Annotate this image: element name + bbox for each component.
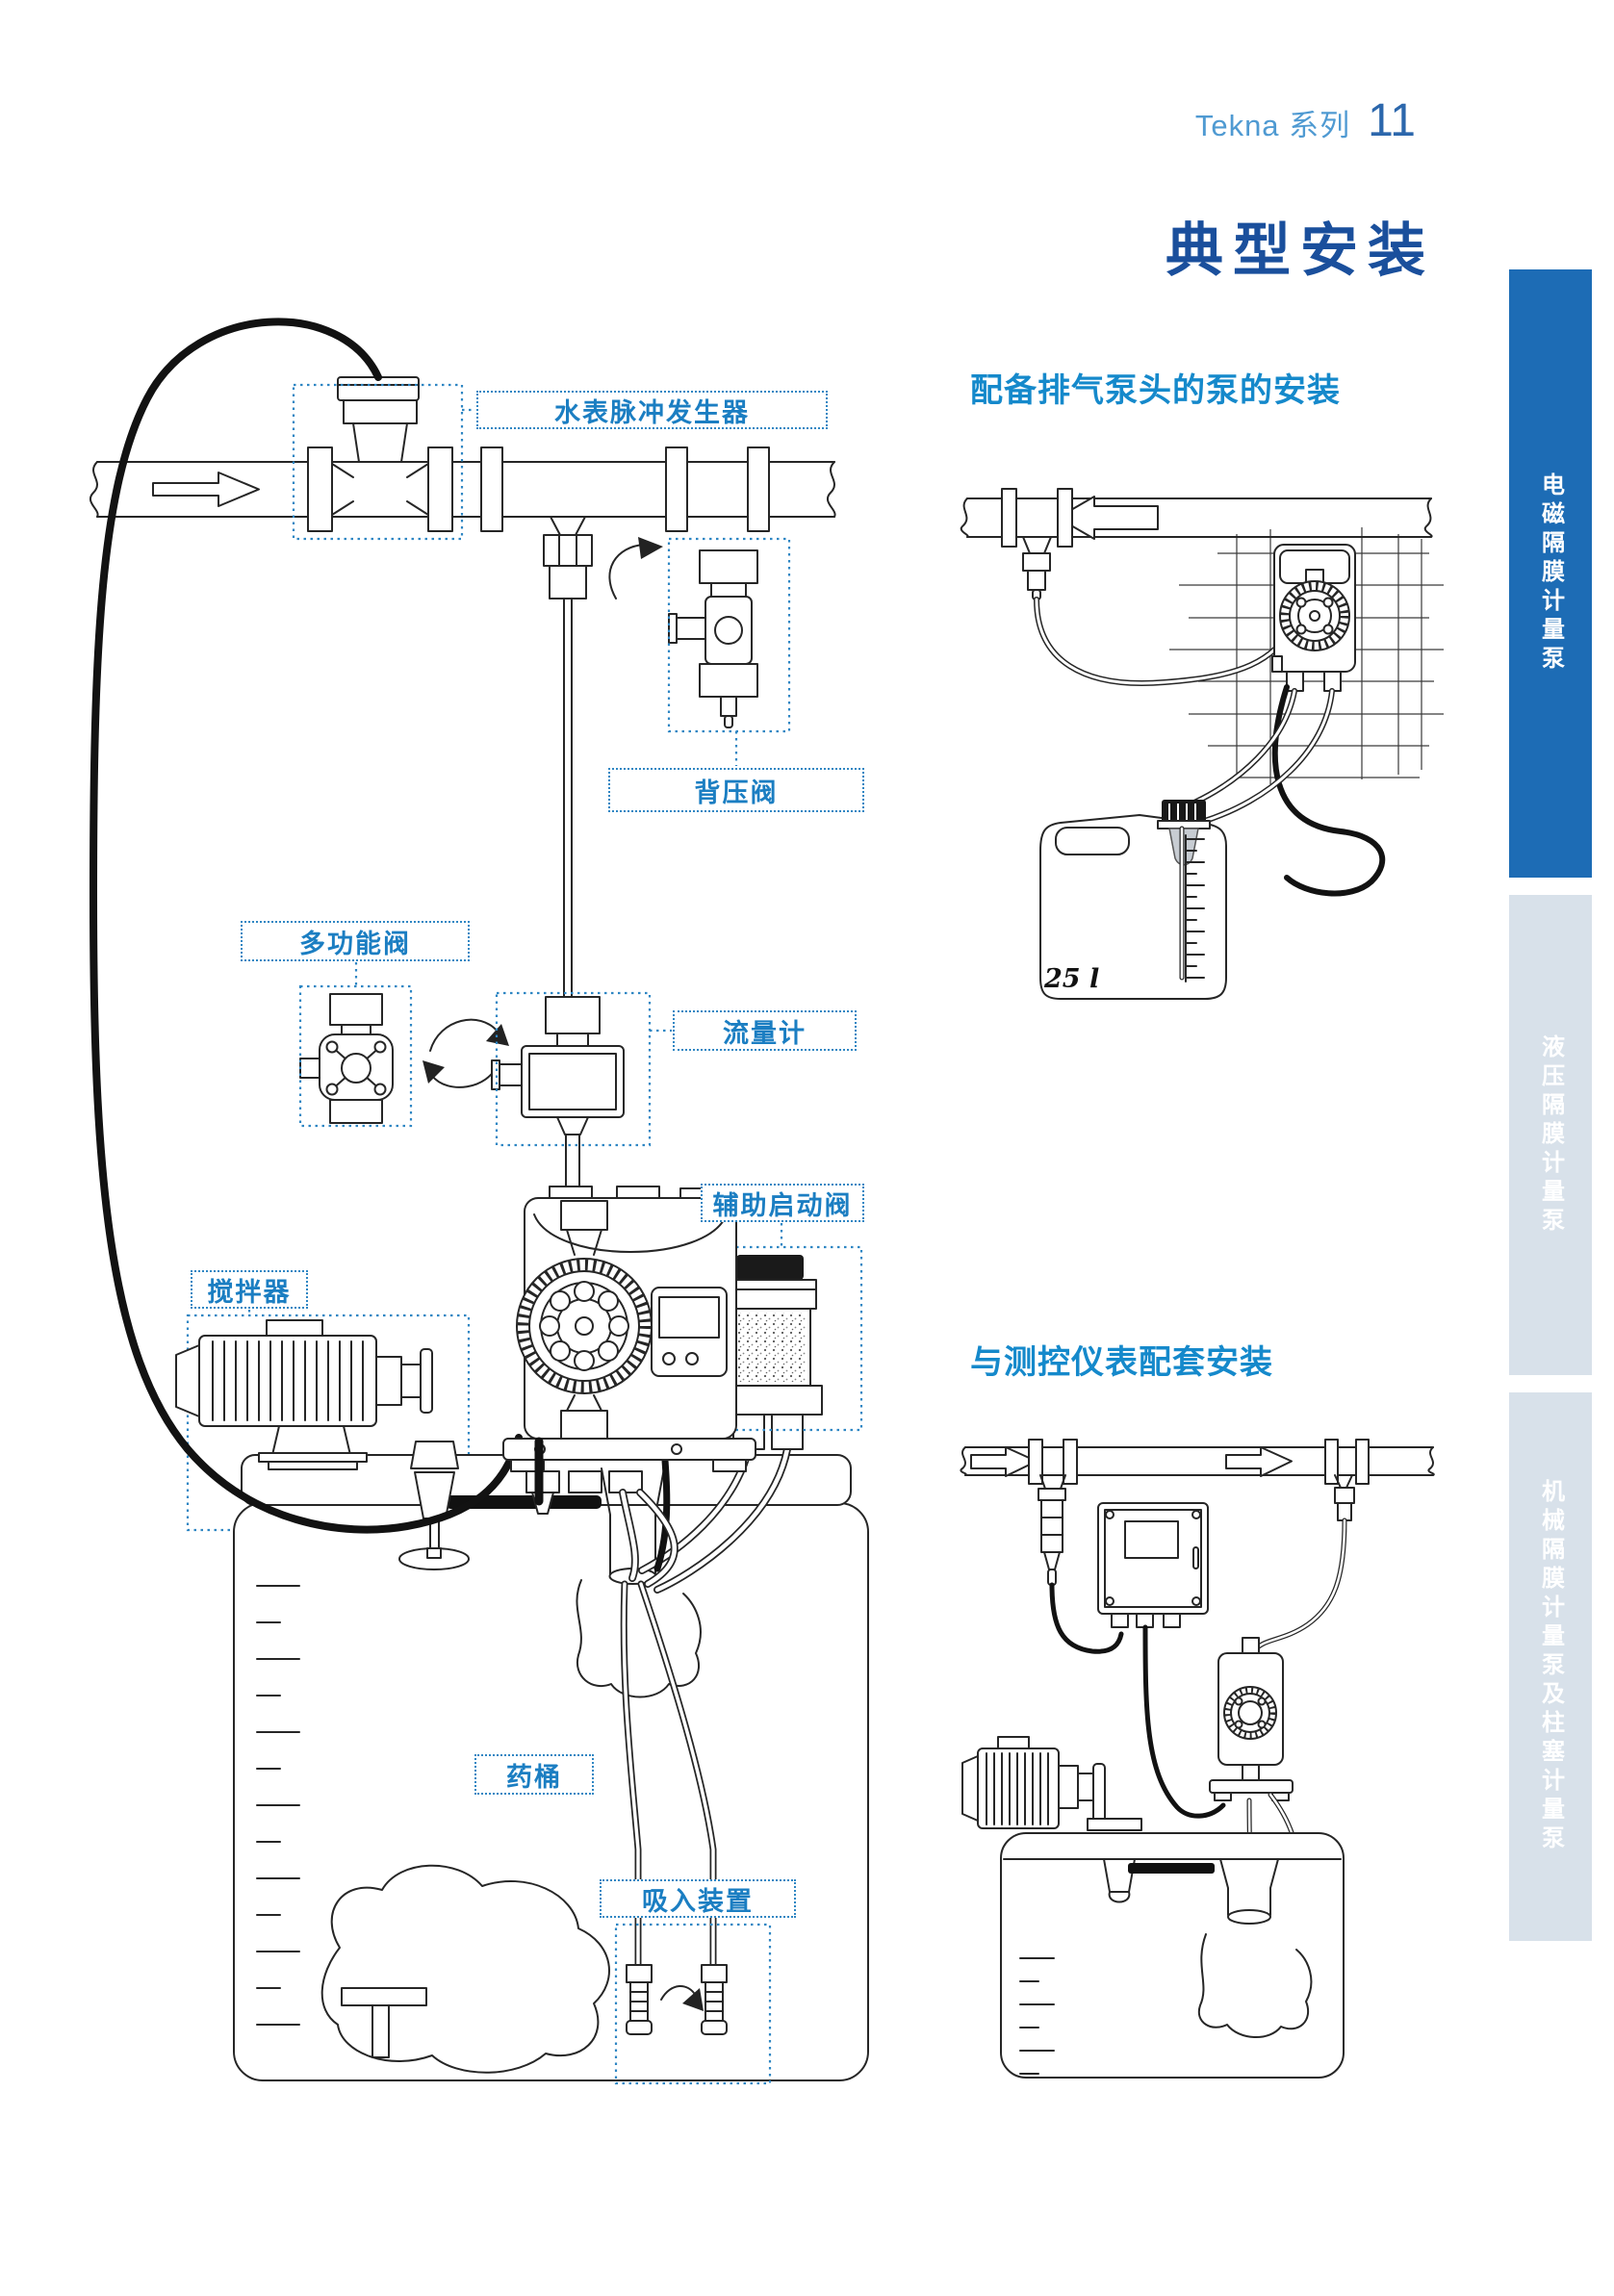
degassing-pump-drawing <box>1272 545 1355 691</box>
sidebar-tab-label: 机械隔膜计量泵及柱塞计量泵 <box>1534 1479 1568 1854</box>
motor-drawing <box>962 1737 1141 1830</box>
page-number: 11 <box>1368 94 1416 147</box>
multifunction-valve-drawing <box>300 994 509 1123</box>
label-chemical-tank: 药桶 <box>474 1754 594 1795</box>
flow-arrow-2 <box>1226 1447 1292 1476</box>
instrument-pump-drawing <box>1210 1638 1293 1800</box>
jerrycan-drawing: 25 l <box>1040 800 1226 999</box>
page-title: 典型安装 <box>1166 204 1435 288</box>
probe-drawing <box>1038 1475 1065 1585</box>
instrument-tank-drawing <box>1001 1833 1344 2078</box>
rotation-arrow <box>609 545 644 599</box>
label-back-pressure-valve: 背压阀 <box>608 768 864 812</box>
sidebar-tab-hydraulic-pumps: 液压隔膜计量泵 <box>1509 895 1592 1375</box>
flow-arrow <box>153 472 259 506</box>
pipe <box>961 1440 1433 1484</box>
back-pressure-valve-drawing <box>609 537 757 727</box>
instrument-installation-diagram <box>948 1395 1448 2088</box>
water-meter-drawing <box>308 377 452 531</box>
sidebar-tab-label: 液压隔膜计量泵 <box>1534 1034 1568 1237</box>
label-aux-priming-valve: 辅助启动阀 <box>701 1184 864 1222</box>
injection-fitting <box>1335 1475 1354 1520</box>
flow-meter-drawing <box>492 997 624 1201</box>
main-installation-diagram <box>53 318 900 2127</box>
section-heading-degassing: 配备排气泵头的泵的安装 <box>970 364 1341 411</box>
controller-drawing <box>1098 1503 1208 1627</box>
catalog-page: Tekna 系列 11 典型安装 配备排气泵头的泵的安装 与测控仪表配套安装 电… <box>0 0 1614 2296</box>
flow-arrow-1 <box>971 1447 1037 1476</box>
label-multifunction-valve: 多功能阀 <box>241 921 470 961</box>
sidebar-tab-label: 电磁隔膜计量泵 <box>1534 472 1568 675</box>
series-label: Tekna 系列 <box>1195 101 1350 144</box>
label-suction-device: 吸入装置 <box>600 1879 796 1918</box>
label-flow-meter: 流量计 <box>673 1010 857 1051</box>
label-agitator: 搅拌器 <box>191 1270 308 1309</box>
injection-fitting <box>544 517 592 997</box>
tank-volume-label: 25 l <box>1043 964 1099 994</box>
section-heading-instrument: 与测控仪表配套安装 <box>970 1336 1273 1383</box>
label-water-meter: 水表脉冲发生器 <box>476 391 828 429</box>
sidebar-tab-solenoid-pumps: 电磁隔膜计量泵 <box>1509 269 1592 878</box>
page-header: Tekna 系列 11 <box>1195 94 1416 147</box>
degassing-installation-diagram: 25 l <box>948 443 1448 1010</box>
pipe <box>961 489 1432 600</box>
sidebar-tab-mechanical-pumps: 机械隔膜计量泵及柱塞计量泵 <box>1509 1392 1592 1941</box>
